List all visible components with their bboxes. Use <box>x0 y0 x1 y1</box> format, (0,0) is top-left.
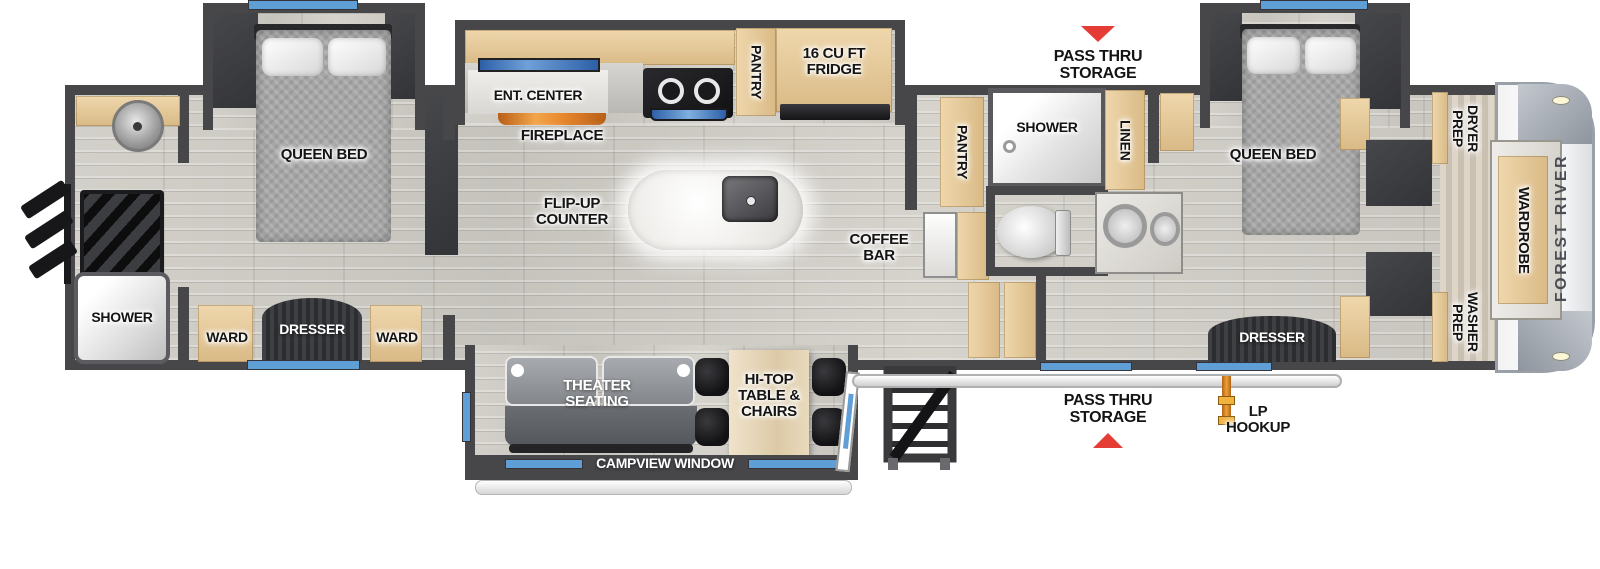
ent-center-label: ENT. CENTER <box>472 88 604 103</box>
rear-bed-pillow-left <box>262 38 323 76</box>
burner-right-icon <box>694 78 720 104</box>
rear-bedroom-wardrobe-left <box>213 13 258 108</box>
front-bedroom-wardrobe-right <box>1355 13 1401 109</box>
bath-shower-drain-icon <box>1003 140 1016 153</box>
bath-wall-under-toilet <box>986 267 1108 276</box>
front-cap-trim-top <box>1518 84 1592 144</box>
wardrobe-label: WARDROBE <box>1496 158 1550 302</box>
bath-wall-under-shower <box>986 186 1108 195</box>
front-bedroom-corner-cabinet <box>1160 93 1194 151</box>
bath-shower-enclosure <box>988 88 1106 188</box>
coffee-bar-cabinet <box>957 212 989 280</box>
front-bed-pillow-left <box>1247 37 1300 74</box>
rear-bath-wall-lower <box>178 287 189 370</box>
rear-bed-pillow-right <box>328 38 386 76</box>
bath-wall-left-of-toilet <box>986 195 995 275</box>
hi-top-chair-1 <box>695 358 729 396</box>
front-bedroom-chest-2 <box>1366 252 1432 316</box>
pass-thru-rail <box>852 374 1342 388</box>
burner-left-icon <box>658 78 684 104</box>
front-bed-label: QUEEN BED <box>1212 147 1334 163</box>
pass-thru-bottom-label: PASS THRU STORAGE <box>1040 392 1176 427</box>
bath-step-2 <box>1004 282 1036 358</box>
exterior-rear-steps-icon <box>20 184 78 288</box>
fridge-counter <box>780 104 890 120</box>
rear-bed-label: QUEEN BED <box>263 147 385 163</box>
flip-up-counter-label: FLIP-UP COUNTER <box>520 196 624 228</box>
pass-thru-top-label: PASS THRU STORAGE <box>1030 48 1166 83</box>
hi-top-chair-3 <box>812 358 846 396</box>
front-cap-light-top <box>1552 96 1570 105</box>
kitchen-pantry-label: PANTRY <box>736 30 776 114</box>
theater-seating-label: THEATER SEATING <box>547 378 647 410</box>
front-dresser-label: DRESSER <box>1227 330 1317 345</box>
ward-left-label: WARD <box>198 330 256 345</box>
bottom-window-1 <box>1040 362 1132 371</box>
tv-icon <box>478 58 600 72</box>
front-bedroom-cabinet-br <box>1340 296 1370 358</box>
rear-shower-label: SHOWER <box>77 310 167 325</box>
washer-prep-label: WASHER PREP <box>1444 288 1486 356</box>
campview-window-label: CAMPVIEW WINDOW <box>583 456 747 471</box>
bottom-window-2 <box>1196 362 1272 371</box>
bath-hall-wall <box>1036 276 1046 370</box>
rear-bath-sink-drain <box>133 122 142 131</box>
island-faucet-icon <box>746 196 756 206</box>
floorplan: SHOWER QUEEN BED WARD DRESSER WARD ENT. … <box>0 0 1600 569</box>
bath-shower-label: SHOWER <box>996 120 1098 135</box>
living-slide-skirt <box>475 480 852 495</box>
fireplace-icon <box>498 113 606 125</box>
dryer-prep-label: DRYER PREP <box>1444 96 1486 160</box>
front-cap-light-bottom <box>1552 352 1570 361</box>
rear-bedroom-bottom-window <box>247 360 360 370</box>
toilet-tank-icon <box>1055 210 1071 256</box>
kitchen-bath-wall <box>905 85 917 210</box>
bedroom-kitchen-wall-lower <box>443 315 455 370</box>
vanity-sink-right-icon <box>1150 212 1180 246</box>
vanity-sink-left-icon <box>1103 204 1147 248</box>
brand-label: FOREST RIVER <box>1553 143 1573 313</box>
rear-bedroom-slide-window <box>248 0 358 10</box>
front-cap-trim-bottom <box>1518 311 1592 371</box>
front-bed-pillow-right <box>1305 37 1356 74</box>
campview-window-left <box>505 459 583 469</box>
pass-thru-bottom-arrow-icon <box>1093 433 1123 448</box>
coffee-bar-label: COFFEE BAR <box>843 232 915 264</box>
linen-label: LINEN <box>1105 92 1145 188</box>
front-bedroom-wardrobe-left <box>1210 13 1242 101</box>
bath-step-1 <box>968 282 1000 358</box>
campview-window-right <box>748 459 848 469</box>
fireplace-label: FIREPLACE <box>502 128 622 144</box>
coffee-bar-appliance <box>923 212 957 278</box>
dresser-label: DRESSER <box>267 322 357 337</box>
ward-right-label: WARD <box>368 330 426 345</box>
bath-pantry-label: PANTRY <box>940 100 984 204</box>
pass-thru-top-arrow-icon <box>1081 26 1115 42</box>
living-slide-left-window <box>462 392 471 442</box>
front-bedroom-slide-window <box>1260 0 1368 10</box>
lp-hookup-label: LP HOOKUP <box>1226 404 1290 436</box>
cupholder-right-icon <box>677 364 690 377</box>
bath-bedroom-wall <box>1148 85 1159 163</box>
hi-top-chair-2 <box>695 408 729 446</box>
fridge-label: 16 CU FT FRIDGE <box>788 46 880 78</box>
oven-icon <box>650 108 728 121</box>
front-bedroom-chest-1 <box>1366 140 1432 206</box>
bedroom-kitchen-wall-upper <box>443 85 455 140</box>
hi-top-table-label: HI-TOP TABLE & CHAIRS <box>726 372 812 421</box>
cupholder-left-icon <box>511 364 524 377</box>
